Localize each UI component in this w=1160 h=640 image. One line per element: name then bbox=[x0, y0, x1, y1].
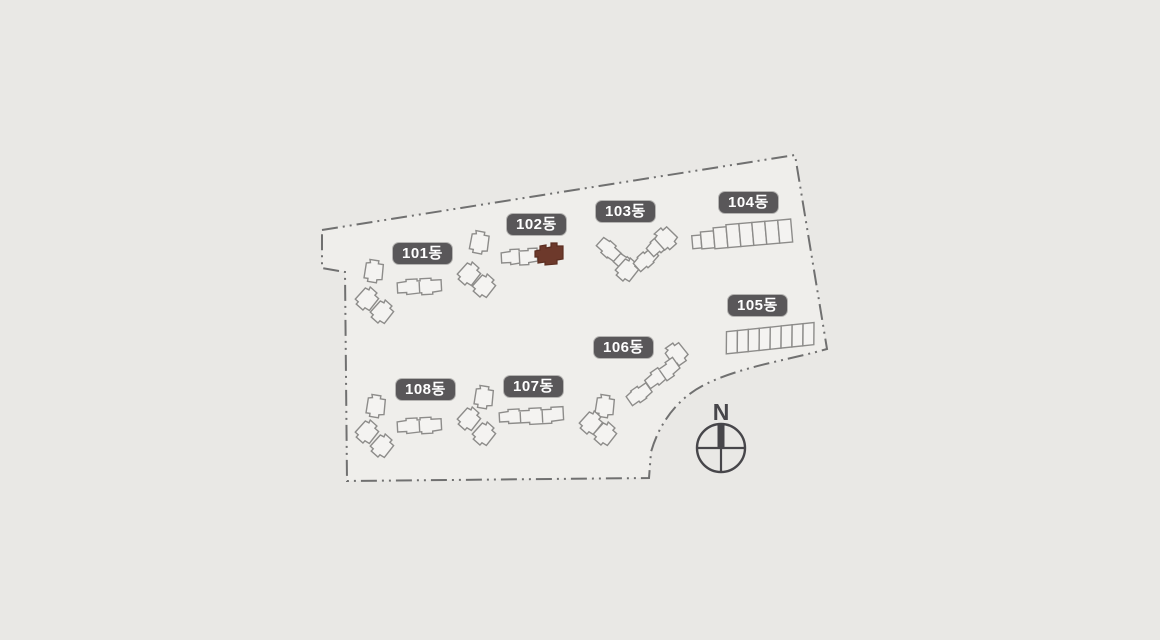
building-label-104[interactable]: 104동 bbox=[718, 191, 779, 214]
site-plan-map: N bbox=[0, 0, 1160, 640]
building-label-106[interactable]: 106동 bbox=[593, 336, 654, 359]
building-label-107[interactable]: 107동 bbox=[503, 375, 564, 398]
site-plan: N 101동 102동 103동 104동 105동 106동 107동 108… bbox=[0, 0, 1160, 640]
building-label-103[interactable]: 103동 bbox=[595, 200, 656, 223]
building-label-101[interactable]: 101동 bbox=[392, 242, 453, 265]
compass-icon: N bbox=[697, 399, 745, 472]
building-label-108[interactable]: 108동 bbox=[395, 378, 456, 401]
building-label-102[interactable]: 102동 bbox=[506, 213, 567, 236]
compass-north-label: N bbox=[713, 399, 730, 425]
building-label-105[interactable]: 105동 bbox=[727, 294, 788, 317]
